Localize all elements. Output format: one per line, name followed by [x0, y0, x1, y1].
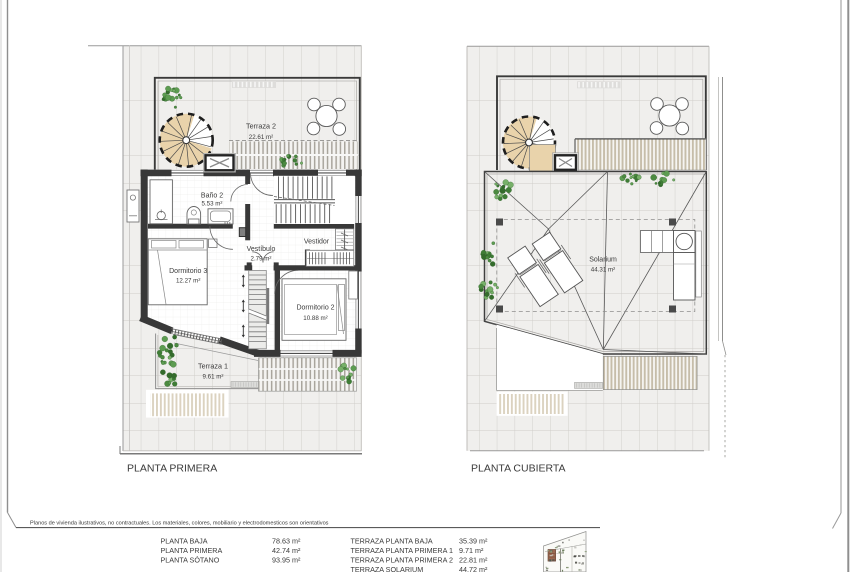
svg-text:PLANTA CUBIERTA: PLANTA CUBIERTA: [471, 463, 566, 475]
svg-text:TERRAZA SOLARIUM: TERRAZA SOLARIUM: [351, 565, 424, 572]
svg-text:PLANTA PRIMERA: PLANTA PRIMERA: [161, 546, 223, 555]
svg-text:2.79 m²: 2.79 m²: [251, 256, 272, 263]
svg-text:Terraza 1: Terraza 1: [198, 362, 228, 371]
svg-text:Vestíbulo: Vestíbulo: [247, 246, 276, 253]
svg-text:TERRAZA PLANTA PRIMERA 2: TERRAZA PLANTA PRIMERA 2: [351, 556, 454, 565]
svg-text:Vestidor: Vestidor: [304, 239, 330, 246]
svg-text:22.61 m²: 22.61 m²: [249, 134, 273, 141]
svg-text:35.39 m²: 35.39 m²: [459, 537, 488, 546]
svg-text:78.63 m²: 78.63 m²: [272, 537, 301, 546]
svg-text:5.53 m²: 5.53 m²: [202, 201, 223, 208]
svg-text:TERRAZA PLANTA PRIMERA 1: TERRAZA PLANTA PRIMERA 1: [351, 546, 454, 555]
svg-text:Dormitorio 2: Dormitorio 2: [296, 305, 334, 312]
svg-text:Solarium: Solarium: [589, 257, 617, 264]
svg-text:TERRAZA PLANTA BAJA: TERRAZA PLANTA BAJA: [351, 537, 433, 546]
svg-text:PLANTA BAJA: PLANTA BAJA: [161, 537, 208, 546]
svg-text:42.74 m²: 42.74 m²: [272, 546, 301, 555]
svg-text:Baño 2: Baño 2: [201, 193, 223, 200]
svg-text:Planos de vivienda ilustrativo: Planos de vivienda ilustrativos, no cont…: [30, 521, 329, 527]
svg-text:PLANTA SÓTANO: PLANTA SÓTANO: [161, 556, 220, 565]
svg-text:Dormitorio 3: Dormitorio 3: [169, 268, 207, 275]
svg-text:12.27 m²: 12.27 m²: [176, 277, 200, 284]
svg-text:93.95 m²: 93.95 m²: [272, 556, 301, 565]
svg-text:10.88 m²: 10.88 m²: [303, 315, 327, 322]
svg-text:44.72 m²: 44.72 m²: [459, 565, 488, 572]
svg-text:44.31 m²: 44.31 m²: [591, 267, 615, 274]
svg-text:22.81 m²: 22.81 m²: [459, 556, 488, 565]
svg-text:9.61 m²: 9.61 m²: [203, 374, 224, 381]
svg-text:PLANTA PRIMERA: PLANTA PRIMERA: [127, 463, 217, 475]
svg-text:9.71 m²: 9.71 m²: [459, 546, 484, 555]
svg-text:Terraza 2: Terraza 2: [246, 122, 276, 131]
